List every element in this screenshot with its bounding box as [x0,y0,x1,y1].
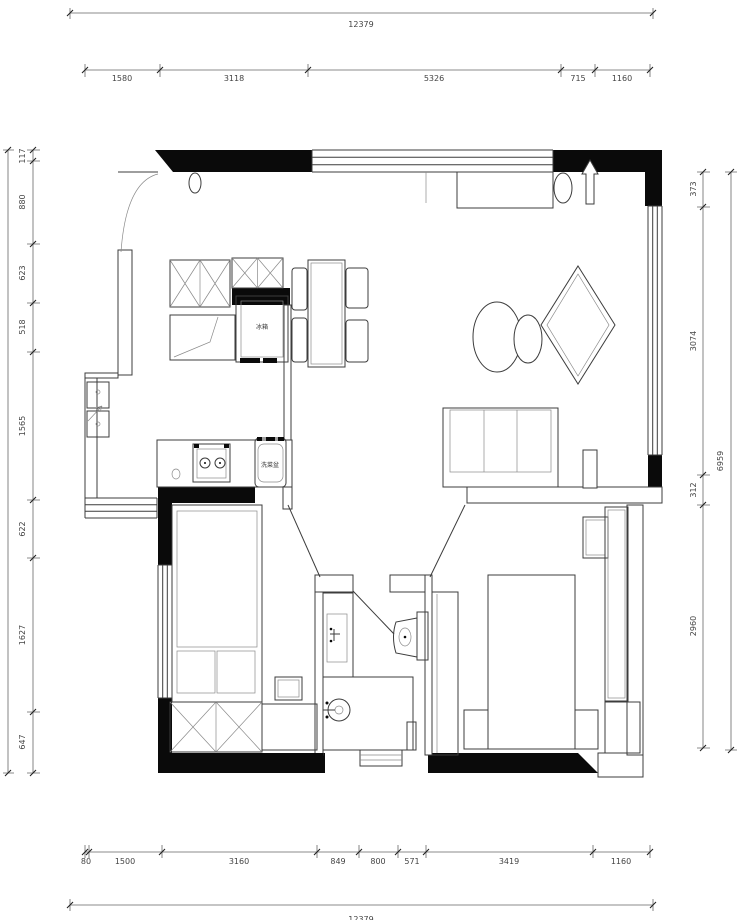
threshold [360,750,402,766]
stove-knob [224,444,229,448]
shower-step [407,722,416,750]
dim-label: 1160 [611,857,631,866]
bedside-table [583,517,608,558]
rug-diamond [541,266,615,384]
cabinet-x-hatch [232,258,283,288]
window-kitchen [85,498,157,518]
wall-left-upper [118,250,132,375]
wall-hall-left [158,487,255,503]
sink-fitting [266,437,275,441]
stove-inner [197,449,226,478]
chair [346,320,368,362]
dim-right-chain: 373 3074 312 2960 [689,169,710,751]
living-room [426,172,615,487]
faucet-dot [330,628,333,631]
bath-shaft [432,592,458,755]
nightstand [575,710,598,749]
wall-corner-se [598,753,643,777]
dining-table-inner [311,263,342,364]
bedside-table-inner [586,520,605,555]
wall-door-post [283,487,292,509]
dim-label: 80 [81,857,91,866]
nightstand [275,677,302,700]
wall-left-step [85,373,118,378]
wall-bedroom-left-west [158,487,172,565]
dim-label: 117 [18,148,27,163]
wardrobe-right-inner [608,510,625,698]
nightstand [464,710,488,749]
wall-corner-ne [645,150,662,206]
toilet-dot [404,636,407,639]
wall-hall-right [467,487,662,503]
faucet-dot [330,640,333,643]
dim-label: 1500 [115,857,135,866]
sink-label: 洗菜盆 [261,461,279,469]
wall-bath-north-left [315,575,353,592]
dim-label: 2960 [689,616,698,636]
dim-label: 5326 [424,74,444,83]
dim-label: 518 [18,319,27,334]
fridge-base [240,358,260,363]
plant-small [514,315,542,363]
floor-plan-canvas: 12379 1580 3118 5326 715 1160 80 1500 31… [0,0,740,920]
corner-counter-edge [174,317,218,357]
bed-right [488,575,575,749]
dim-label: 571 [404,857,419,866]
wall-bottom-right [428,753,598,773]
wall-bath-bottom [310,753,323,773]
shower-dot [326,702,329,705]
door-leaf-bedroom-right [430,505,465,577]
bathroom [323,592,458,766]
door-leaf-bathroom [353,591,394,634]
dim-label: 1160 [612,74,632,83]
sink-fitting [278,437,284,441]
bedroom-left [170,505,317,752]
dim-label: 715 [570,74,585,83]
tv-cabinet [457,172,553,208]
wall-top-left [155,150,312,172]
dim-label: 3074 [689,331,698,351]
dining [292,260,368,367]
dim-label: 647 [18,734,27,749]
fridge-base [263,358,277,363]
wall-bottom-left [158,753,325,773]
dim-label: 12379 [348,915,373,920]
washbasin-cabinet [323,593,353,677]
wall-bedroom-right-east [627,505,643,755]
faucet-icon [330,629,340,641]
wall-bath-west [315,592,323,755]
doors [121,160,598,634]
fridge-label: 冰箱 [256,323,268,331]
wall-stub [583,450,597,488]
dim-label: 6959 [716,451,725,471]
rug-diamond-inner [547,274,609,376]
wall-top-right [553,150,645,172]
dim-left-chain: 117 880 623 518 1565 622 1627 647 [18,147,40,776]
entry-door-arc [121,174,158,252]
door-leaf-bedroom-left [288,505,320,577]
dim-label: 12379 [348,20,373,29]
sofa-seats [450,410,551,472]
dim-label: 623 [18,265,27,280]
dim-right-total: 6959 [716,169,737,753]
window-right [648,206,662,455]
dim-label: 800 [370,857,385,866]
dim-label: 3118 [224,74,244,83]
washbasin [327,614,347,662]
dim-label: 3419 [499,857,519,866]
dim-label: 849 [330,857,345,866]
bed-left-mattress [177,511,257,647]
dim-label: 880 [18,194,27,209]
bed-left-pillow [217,651,255,693]
dim-left-outer-line [3,147,14,776]
dim-top-total: 12379 [67,8,656,29]
window-top [312,150,553,172]
shower-dot [326,716,329,719]
window-bedroom-left [158,565,172,698]
chair [292,268,307,310]
cabinet-left-bedroom [262,704,317,750]
chair [346,268,368,308]
dim-label: 1580 [112,74,132,83]
pot [172,469,180,479]
floor-plan-page: 12379 1580 3118 5326 715 1160 80 1500 31… [0,0,740,920]
dim-label: 1627 [18,625,27,645]
sofa [443,408,558,487]
burner-dot [219,462,221,464]
wall-bath-east [425,575,432,755]
dim-top-chain: 1580 3118 5326 715 1160 [82,64,653,83]
ceiling-lamp [189,173,201,193]
sink-fitting [257,437,262,441]
chair [292,318,307,362]
shower-head-inner [335,706,343,714]
dim-bottom-chain: 80 1500 3160 849 800 571 3419 1160 [81,845,653,866]
cabinet-x-hatch [170,260,230,307]
bedroom-right [464,507,640,753]
dim-label: 312 [689,482,698,497]
threshold-lines [360,755,402,760]
floor-lamp [554,173,572,203]
dim-bottom-total: 12379 [67,899,656,920]
bed-left-pillow [177,651,215,693]
dim-label: 3160 [229,857,249,866]
sofa-seat-dividers [484,410,517,472]
wardrobe-x-hatch [170,702,262,752]
dining-table [308,260,345,367]
corner-counter [170,315,235,360]
stove [193,444,230,482]
burner-dot [204,462,206,464]
dim-label: 622 [18,521,27,536]
dim-label: 1565 [18,416,27,436]
nightstand-inner [278,680,299,697]
dim-label: 373 [689,181,698,196]
stove-knob [194,444,199,448]
